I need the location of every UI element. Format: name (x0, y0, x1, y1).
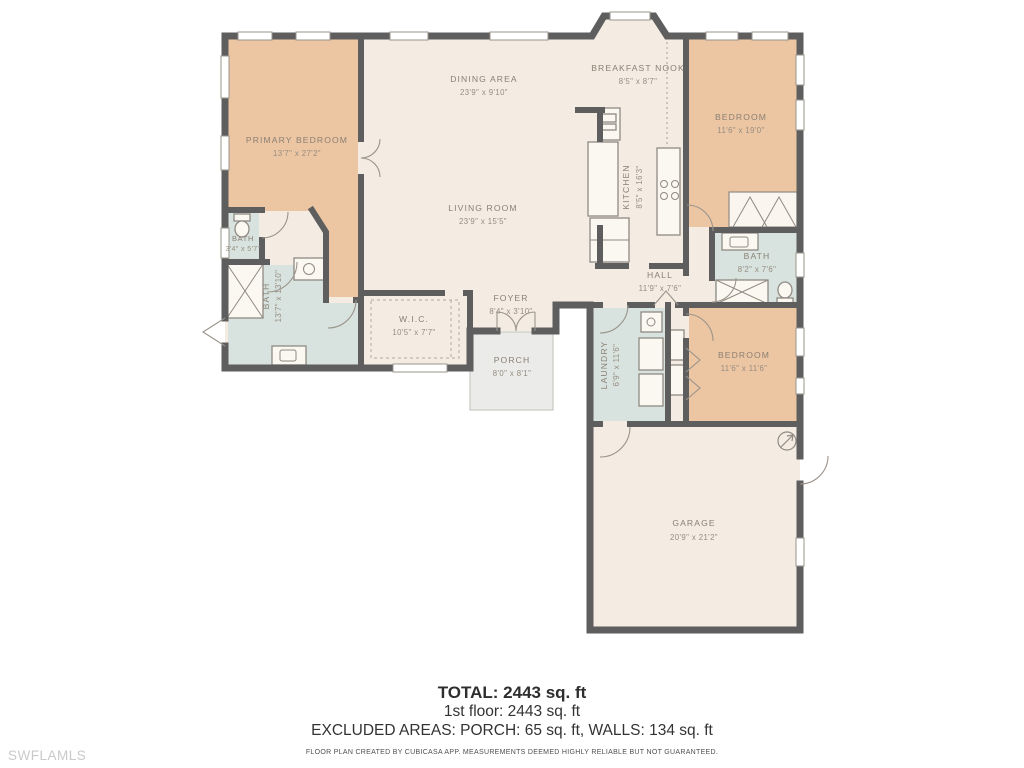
kitchen-counter (588, 142, 618, 216)
svg-text:11'9" x 7'6": 11'9" x 7'6" (639, 284, 682, 293)
laundry-appliances (639, 312, 663, 406)
laundry-sink (641, 312, 662, 332)
vanity-sink (294, 258, 324, 280)
svg-text:10'5" x 7'7": 10'5" x 7'7" (392, 328, 435, 337)
vanity-sink-2 (272, 346, 306, 365)
svg-text:20'9" x 21'2": 20'9" x 21'2" (670, 533, 718, 542)
svg-text:3'4" x 5'7": 3'4" x 5'7" (225, 246, 260, 253)
label-bath-small: BATH (232, 234, 254, 243)
label-bath-ne: BATH (744, 251, 771, 261)
label-foyer: FOYER (493, 293, 528, 303)
label-laundry: LAUNDRY (599, 341, 609, 390)
closet-ne (729, 192, 797, 227)
kitchen-sink (602, 114, 616, 122)
label-porch: PORCH (494, 355, 531, 365)
svg-text:8'5" x 16'3": 8'5" x 16'3" (635, 165, 644, 208)
shower-fixture (227, 264, 263, 318)
garage-side-door-swing (800, 456, 828, 484)
svg-text:8'0" x 8'1": 8'0" x 8'1" (493, 369, 532, 378)
label-bath-primary: BATH (261, 283, 271, 310)
label-living-room: LIVING ROOM (448, 203, 517, 213)
svg-text:11'6" x 11'6": 11'6" x 11'6" (721, 364, 768, 373)
bay-window (610, 12, 650, 20)
area-summary: TOTAL: 2443 sq. ft 1st floor: 2443 sq. f… (0, 683, 1024, 756)
label-dining-area: DINING AREA (450, 74, 518, 84)
shower-fixture-ne (716, 280, 768, 304)
toilet-fixture-ne (777, 282, 793, 304)
svg-text:13'7" x 13'10": 13'7" x 13'10" (274, 270, 283, 323)
svg-text:8'2" x 7'6": 8'2" x 7'6" (738, 265, 777, 274)
label-bedroom-se: BEDROOM (718, 350, 770, 360)
svg-text:6'9" x 11'6": 6'9" x 11'6" (612, 344, 621, 387)
first-floor-area: 1st floor: 2443 sq. ft (0, 702, 1024, 721)
svg-text:8'4" x 3'10": 8'4" x 3'10" (489, 307, 532, 316)
floor-plan: PRIMARY BEDROOM 13'7" x 27'2" DINING ARE… (0, 0, 1024, 768)
label-hall: HALL (647, 270, 673, 280)
total-area: TOTAL: 2443 sq. ft (0, 683, 1024, 702)
label-primary-bedroom: PRIMARY BEDROOM (246, 135, 348, 145)
svg-text:8'5" x 8'7": 8'5" x 8'7" (619, 77, 658, 86)
label-breakfast-nook: BREAKFAST NOOK (591, 63, 685, 73)
exterior-side-door (203, 318, 225, 346)
dryer (639, 374, 663, 406)
svg-text:11'6" x 19'0": 11'6" x 19'0" (717, 126, 764, 135)
svg-text:23'9" x 15'5": 23'9" x 15'5" (459, 217, 507, 226)
excluded-areas: EXCLUDED AREAS: PORCH: 65 sq. ft, WALLS:… (0, 721, 1024, 740)
washer (639, 338, 663, 370)
label-garage: GARAGE (672, 518, 715, 528)
svg-text:23'9" x 9'10": 23'9" x 9'10" (460, 88, 508, 97)
label-kitchen: KITCHEN (621, 164, 631, 209)
svg-text:13'7" x 27'2": 13'7" x 27'2" (273, 149, 321, 158)
label-bedroom-ne: BEDROOM (715, 112, 767, 122)
vanity-sink-ne (722, 233, 758, 250)
kitchen-counter-right (657, 148, 680, 235)
disclaimer: FLOOR PLAN CREATED BY CUBICASA APP. MEAS… (0, 749, 1024, 756)
label-wic: W.I.C. (399, 314, 429, 324)
watermark: SWFLAMLS (8, 748, 86, 763)
